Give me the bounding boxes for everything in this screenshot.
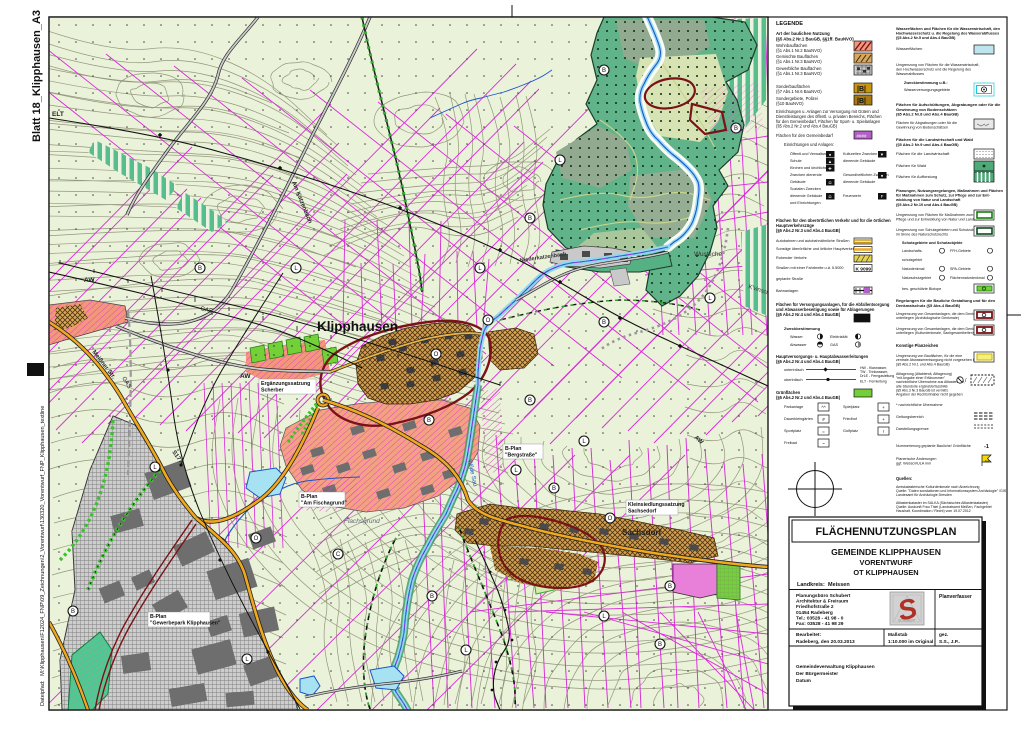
svg-text:Naturdenkmal: Naturdenkmal [902,267,925,271]
svg-text:Architektur & Freiraum: Architektur & Freiraum [796,599,848,605]
svg-text:|B|: |B| [857,98,866,105]
svg-text:=: = [822,429,825,434]
svg-text:(§5 Abs.2 Nr.2 und Abs.4 BauGB: (§5 Abs.2 Nr.2 und Abs.4 BauGB) [776,395,841,400]
svg-text:Wasser: Wasser [790,335,803,339]
svg-text:Meissen: Meissen [828,582,850,588]
svg-text:Ruhender Verkehr: Ruhender Verkehr [776,256,808,260]
svg-text:B: B [427,418,431,424]
svg-text:+: + [882,417,885,422]
svg-text:Flächennaturdenkmal: Flächennaturdenkmal [950,276,985,280]
svg-text:im Sinne des Naturschutzrechts: im Sinne des Naturschutzrechts [896,232,948,236]
svg-text:Darstellungsgrenze: Darstellungsgrenze [896,427,929,431]
svg-text:Spielplatz: Spielplatz [843,405,860,409]
svg-text:B: B [602,68,606,74]
svg-text:den Hochwasserschutz und die R: den Hochwasserschutz und die Regelung de… [896,67,971,71]
svg-text:Freibad: Freibad [784,441,797,445]
svg-text:Zwecken dienende: Zwecken dienende [790,173,822,177]
svg-text:Landkreis:: Landkreis: [797,582,825,588]
svg-text:Einrichtungen und Anlagen:: Einrichtungen und Anlagen: [784,142,834,147]
svg-text:Flachsgrund: Flachsgrund [344,518,380,525]
svg-text:SCHUBERT: SCHUBERT [898,619,916,623]
svg-text:Planungsbüro Schubert: Planungsbüro Schubert [796,593,851,599]
svg-text:Quellen:: Quellen: [896,476,912,481]
svg-text:Abwasser: Abwasser [790,343,807,347]
svg-text:wicklung von Natur und Landsch: wicklung von Natur und Landschaft [895,198,961,202]
svg-text:Golfplatz: Golfplatz [843,429,858,433]
svg-text:Art der baulichen Nutzung: Art der baulichen Nutzung [776,31,830,36]
svg-text:(§1 Abs.1 Nr.2 BauNVO): (§1 Abs.1 Nr.2 BauNVO) [776,48,822,53]
svg-text:B: B [658,642,662,648]
svg-text:Gebäude: Gebäude [790,180,806,184]
svg-text:O: O [434,352,439,358]
svg-text:#: # [822,417,825,422]
svg-text:(§5 Abs.2 Nr.1 und Abs.4 BauGB: (§5 Abs.2 Nr.1 und Abs.4 BauGB) [896,362,950,366]
svg-text:LEGENDE: LEGENDE [776,21,803,27]
svg-text:Angaben der Rechtsinhaber nich: Angaben der Rechtsinhaber nicht gegeben [896,393,963,397]
svg-text:~: ~ [822,441,825,446]
svg-text:Dateipfad: M:\Klipphausen\F1: Dateipfad: M:\Klipphausen\F12024_FNP\09_… [40,406,46,706]
svg-text:Sportplatz: Sportplatz [784,429,801,433]
svg-text:GEMEINDE KLIPPHAUSEN: GEMEINDE KLIPPHAUSEN [831,547,941,557]
svg-text:(§5 Abs.2 Nr.8 und Abs.4 BauGB: (§5 Abs.2 Nr.8 und Abs.4 BauGB) [896,112,959,117]
svg-text:Radeberg, den 20.03.2013: Radeberg, den 20.03.2013 [796,639,855,645]
svg-text:B-Plan: B-Plan [150,614,166,620]
svg-text:(§7 Abs.1 Nr.6 BauNVO): (§7 Abs.1 Nr.6 BauNVO) [776,89,822,94]
svg-text:bes. geschützte Biotope: bes. geschützte Biotope [902,287,941,291]
svg-text:schutzgebiet: schutzgebiet [902,258,922,262]
svg-text:oberirdisch: oberirdisch [784,378,803,382]
svg-text:SPA-Gebiete: SPA-Gebiete [950,267,971,271]
svg-text:FFH-Gebiete: FFH-Gebiete [950,249,971,253]
svg-text:(§5 Abs.2 Nr.4 und Abs.4 BauGB: (§5 Abs.2 Nr.4 und Abs.4 BauGB) [776,359,841,364]
svg-text:Geltungsbereich: Geltungsbereich [896,415,924,419]
svg-text:▲: ▲ [828,159,832,164]
svg-text:(§5 Abs.2 Nr.1 BauGB, §§1ff. B: (§5 Abs.2 Nr.1 BauGB, §§1ff. BauNVO) [776,36,854,41]
svg-text:(§1 Abs.1 Nr.3 BauNVO): (§1 Abs.1 Nr.3 BauNVO) [776,59,822,64]
svg-text:Scherber: Scherber [261,388,284,394]
svg-text:O: O [486,318,491,324]
svg-text:AW: AW [84,277,95,284]
svg-text:"Am Fischagrund": "Am Fischagrund" [301,501,347,507]
svg-text:Denkmalschutz (§5 Abs.4 BauGB): Denkmalschutz (§5 Abs.4 BauGB) [896,303,961,308]
svg-text:Hochwasserschutz u. die Regelu: Hochwasserschutz u. die Regelung des Was… [896,32,999,36]
svg-text:gez.: gez. [939,633,948,638]
svg-text:(§10 BauNVO): (§10 BauNVO) [776,101,804,106]
svg-text:Landesamt für Archäologie Dres: Landesamt für Archäologie Dresden [896,493,952,497]
svg-text:Zweckbestimmung u.B.:: Zweckbestimmung u.B.: [904,81,948,85]
svg-text:(§5 Abs.2 Nr.9 und Abs.4 BauGB: (§5 Abs.2 Nr.9 und Abs.4 BauGB) [896,142,959,147]
svg-text:✚: ✚ [828,166,832,171]
svg-text:Sachsdorf: Sachsdorf [622,528,661,537]
svg-text:B: B [668,584,672,590]
svg-text:Straßen mit einer Fahrbreite u: Straßen mit einer Fahrbreite u.ä. 5.5000 [776,266,844,270]
svg-text:Flächen für den Gemeinbedarf: Flächen für den Gemeinbedarf [776,133,834,138]
svg-text:ELT: ELT [52,111,64,118]
svg-text:B-Plan: B-Plan [301,494,317,500]
svg-text:Elektrizität: Elektrizität [830,335,848,339]
svg-text:Autobahnen und autobahnähnlich: Autobahnen und autobahnähnliche Straßen [776,239,849,243]
svg-text:|B|: |B| [857,86,866,93]
svg-text:Wasserversorgungsgebiete: Wasserversorgungsgebiete [904,88,950,92]
svg-text:(§5 Abs.2 Nr.10 und Abs.4 BauG: (§5 Abs.2 Nr.10 und Abs.4 BauGB) [896,203,958,207]
svg-text:Ergänzungssatzung: Ergänzungssatzung [261,381,310,387]
svg-text:dienende Gebäude: dienende Gebäude [790,194,822,198]
svg-text:!: ! [883,429,884,434]
svg-text:Schutzgebiete und Schutzobjekt: Schutzgebiete und Schutzobjekte [902,241,963,245]
svg-text:Zweckbestimmung: Zweckbestimmung [784,326,821,331]
svg-text:(§5 Abs.2 Nr.5 und Abs.4 BauGB: (§5 Abs.2 Nr.5 und Abs.4 BauGB) [896,36,956,40]
svg-text:ELT - Fernleitung: ELT - Fernleitung [860,380,887,384]
svg-text:Wustliche: Wustliche [694,251,722,258]
svg-text:Bahnanlagen: Bahnanlagen [776,289,798,293]
svg-text:"Bergstraße": "Bergstraße" [505,453,538,459]
svg-text:(§1 Abs.1 Nr.3 BauNVO): (§1 Abs.1 Nr.3 BauNVO) [776,71,822,76]
svg-text:O: O [608,516,613,522]
svg-text:Blatt 18_Klipphausen_A3: Blatt 18_Klipphausen_A3 [31,10,43,142]
svg-text:Wasserabflusses: Wasserabflusses [896,72,924,76]
svg-text:Haushalt, Koordination / Recht: Haushalt, Koordination / Recht) vom 19.0… [896,509,971,513]
svg-text:C: C [336,552,341,558]
svg-text:Friedhof: Friedhof [843,417,858,421]
svg-text:(§5 Abs.2 Nr.2 und Abs.4 BauGB: (§5 Abs.2 Nr.2 und Abs.4 BauGB) [776,124,838,129]
svg-text:B: B [71,609,75,615]
svg-text:Sozialen Zwecken: Sozialen Zwecken [790,187,821,191]
svg-text:dienende Gebäude: dienende Gebäude [843,159,875,163]
svg-text:Bearbeitet:: Bearbeitet: [796,632,821,638]
svg-text:Planverfasser: Planverfasser [939,594,972,600]
svg-text:(§5 Abs.2 Nr.3 und Abs.4 BauGB: (§5 Abs.2 Nr.3 und Abs.4 BauGB) [776,228,841,233]
svg-text:OT KLIPPHAUSEN: OT KLIPPHAUSEN [853,568,918,577]
svg-text:Datum: Datum [796,678,811,684]
svg-text:Nummerierung geplante Bauliche: Nummerierung geplante Bauliche/ Grünfläc… [896,444,971,448]
svg-text:B: B [552,486,556,492]
svg-text:B: B [528,216,532,222]
svg-text:B-Plan: B-Plan [505,446,521,452]
svg-text:"Gewerbepark Klipphausen": "Gewerbepark Klipphausen" [150,621,221,627]
svg-text:▼: ▼ [880,152,884,157]
svg-text:Naturschutzgebiet: Naturschutzgebiet [902,276,931,280]
svg-text:01454 Radeberg: 01454 Radeberg [796,610,833,616]
svg-text:Parkanlage: Parkanlage [784,405,803,409]
svg-text:Klipphausen: Klipphausen [317,319,398,334]
svg-text:unterliegen (Kulturdenkmale, S: unterliegen (Kulturdenkmale, Sachgesamth… [896,331,974,335]
svg-text:Gemeindeverwaltung Klipphausen: Gemeindeverwaltung Klipphausen [796,664,875,670]
svg-text:O: O [254,536,259,542]
svg-text:dienende Gebäude: dienende Gebäude [843,180,875,184]
svg-text:(§5 Abs.2 Nr.4 und Abs.4 BauGB: (§5 Abs.2 Nr.4 und Abs.4 BauGB) [776,312,841,317]
svg-text:Wasserflächen: Wasserflächen [896,46,922,51]
svg-text:B: B [528,398,532,404]
svg-text:Kulturellen Zwecken: Kulturellen Zwecken [843,152,877,156]
svg-text:unterliegen (Archäologische De: unterliegen (Archäologische Denkmale) [896,316,959,320]
svg-text:Wasserflächen und Flächen für: Wasserflächen und Flächen für die Wasser… [896,27,1001,31]
svg-text:Gewinnung von Bodenschätzen: Gewinnung von Bodenschätzen [896,125,948,129]
svg-text:geplante Straße: geplante Straße [776,277,803,281]
svg-text:VORENTWURF: VORENTWURF [860,558,913,567]
svg-text:Flächen für Abgrabungen oder f: Flächen für Abgrabungen oder für die [896,121,957,125]
svg-text:Flächen für Aufforstung: Flächen für Aufforstung [896,174,937,179]
svg-text:Landschafts-: Landschafts- [902,249,923,253]
svg-text:B: B [198,266,202,272]
svg-text:K 9099: K 9099 [856,267,872,273]
svg-text:Planungen, Nutzungsregelungen,: Planungen, Nutzungsregelungen, Maßnahmen… [896,189,1004,193]
svg-text:Dauerkleingärten: Dauerkleingärten [784,417,813,421]
svg-text:+: + [882,405,885,410]
svg-text:Schule: Schule [790,159,802,163]
svg-text:GAS: GAS [830,343,838,347]
svg-text:Flächen für die Landwirtschaft: Flächen für die Landwirtschaft [896,151,950,156]
svg-text:Der Bürgermeister: Der Bürgermeister [796,671,838,677]
svg-text:A4: A4 [985,460,990,464]
svg-text:B: B [602,320,606,326]
svg-text:* nachrichtliche Übernahme: * nachrichtliche Übernahme [896,403,943,407]
svg-text:Kirchen und kirchlichen: Kirchen und kirchlichen [790,166,829,170]
svg-text:Friedhofstraße 2: Friedhofstraße 2 [796,604,834,610]
svg-text:B: B [430,594,434,600]
svg-text:Flächen für Wald: Flächen für Wald [896,163,926,168]
svg-text:DrLE - Ferngasleitung: DrLE - Ferngasleitung [860,374,894,378]
svg-text:Umgrenzung von Flächen für die: Umgrenzung von Flächen für die Wasserwir… [896,63,979,67]
svg-text:für Maßnahmen zum Schutz, zur: für Maßnahmen zum Schutz, zur Pflege und… [896,194,991,198]
svg-text:-1: -1 [984,444,989,450]
svg-text:unterirdisch: unterirdisch [784,368,804,372]
svg-text:Sachsedorf: Sachsedorf [628,509,657,515]
svg-text:F: F [881,194,884,199]
svg-text:ggf. WebsoVULA mm: ggf. WebsoVULA mm [896,461,931,465]
svg-text:Umgrenzung von Schutzgebieten: Umgrenzung von Schutzgebieten und Schutz… [896,228,984,232]
svg-text:Kleinsiedlungssatzung: Kleinsiedlungssatzung [628,502,685,508]
svg-text:####: #### [857,134,868,139]
svg-text:und Einrichtungen: und Einrichtungen [790,201,821,205]
svg-text:AW: AW [240,373,251,380]
svg-text:Fax: 03528 - 41 98 29: Fax: 03528 - 41 98 29 [796,621,844,627]
svg-text:Konstige Planzeichen: Konstige Planzeichen [896,343,939,348]
svg-text:S.S., J.P..: S.S., J.P.. [939,639,960,645]
svg-text:Tel.: 03528 - 41 98 - 0: Tel.: 03528 - 41 98 - 0 [796,615,844,621]
svg-text:FLÄCHENNUTZUNGSPLAN: FLÄCHENNUTZUNGSPLAN [816,525,957,538]
svg-text:Maßstab: Maßstab [888,632,908,638]
svg-text:Feuerwehr: Feuerwehr [843,194,862,198]
svg-text:Pflege und zur Entwicklung von: Pflege und zur Entwicklung von Natur und… [896,217,984,221]
svg-text:1:10.000 im Original: 1:10.000 im Original [888,639,933,645]
